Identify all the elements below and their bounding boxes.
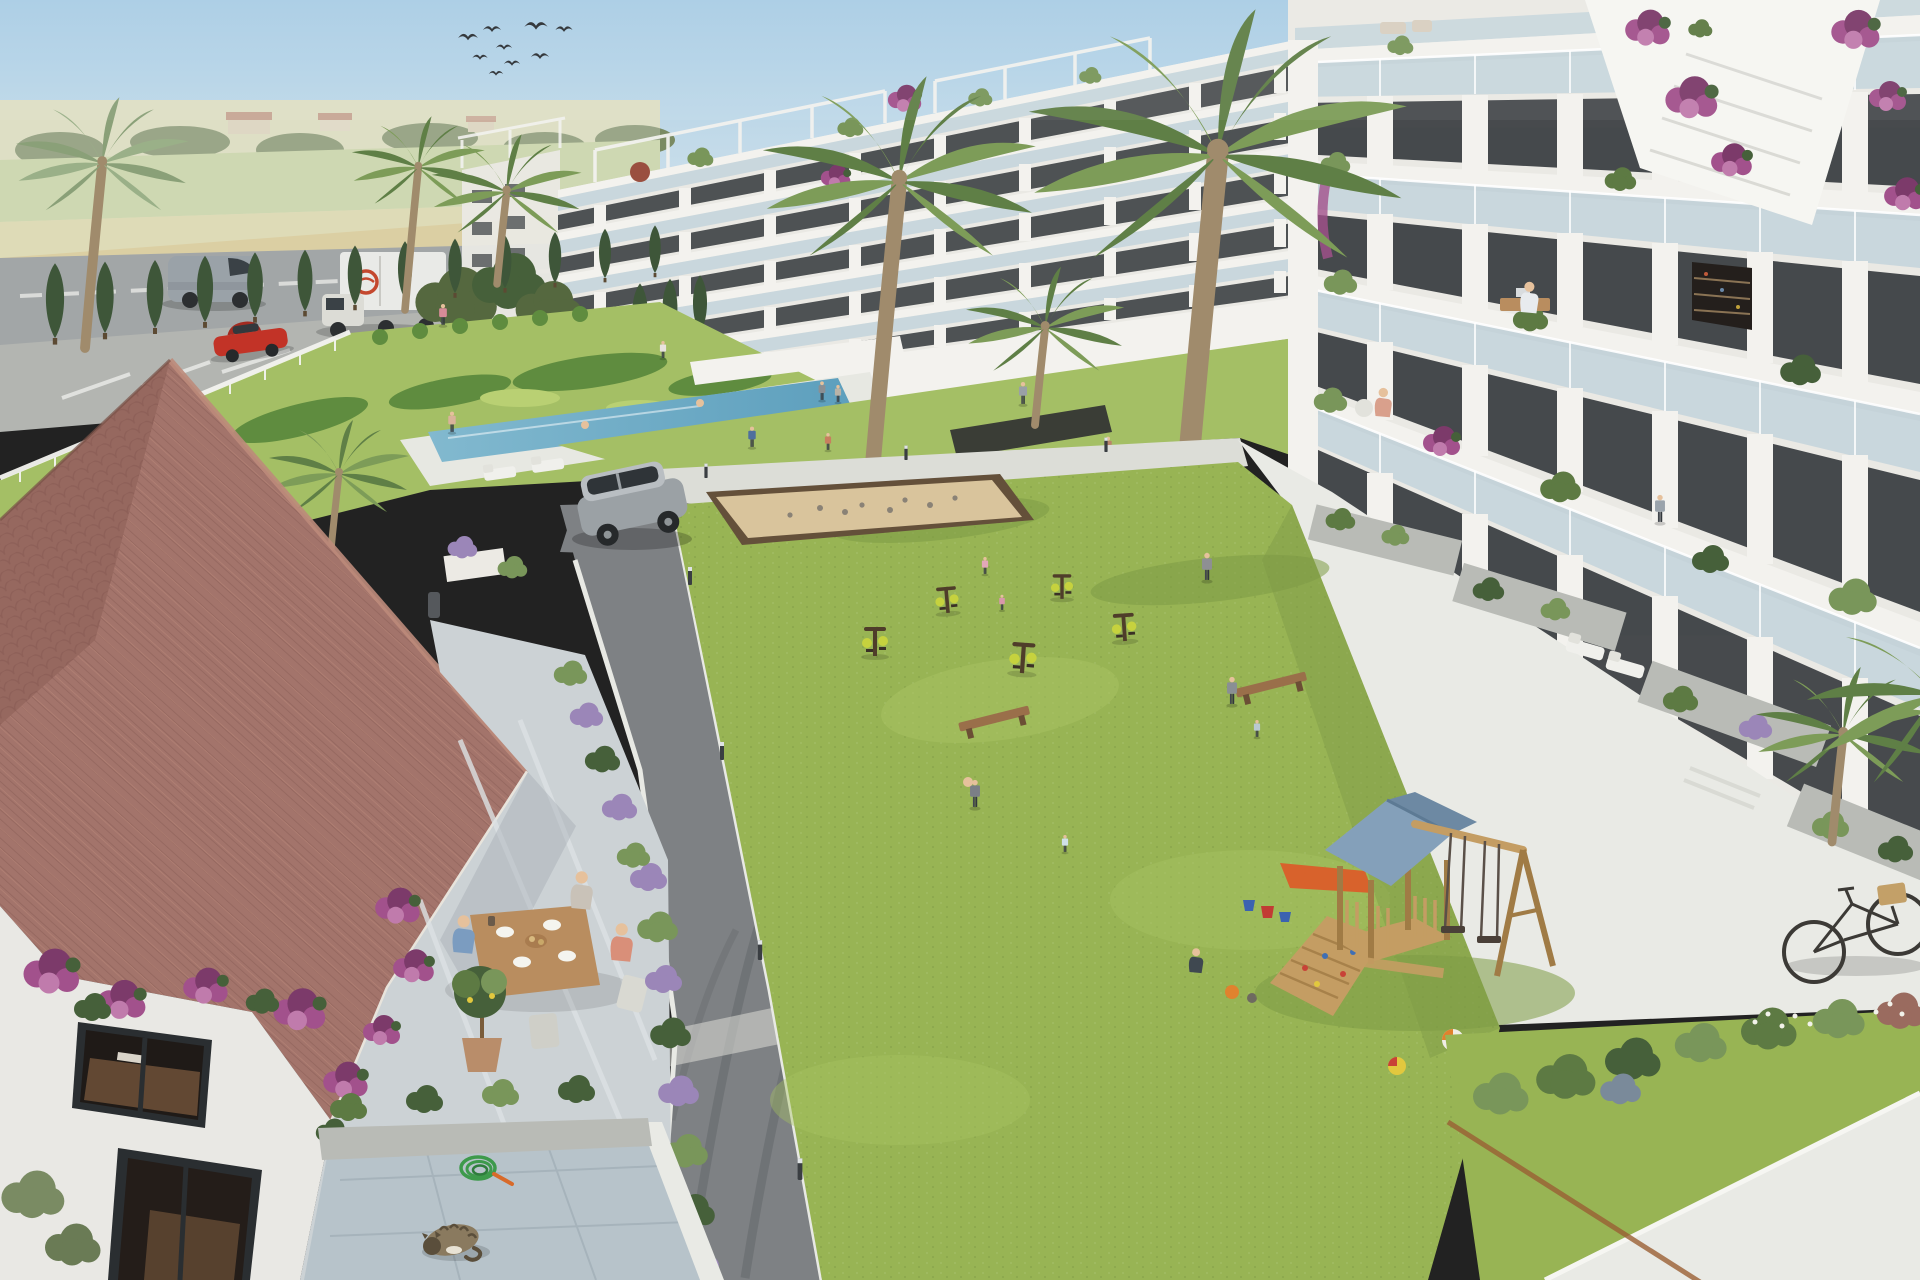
render-scene: Residential complex aerial render bbox=[0, 0, 1920, 1280]
swimmer bbox=[696, 399, 704, 407]
chair bbox=[528, 1013, 559, 1050]
coffee-pot bbox=[488, 916, 495, 926]
architectural-render: Residential complex aerial render bbox=[0, 0, 1920, 1280]
bottom-right-garden bbox=[1445, 993, 1920, 1280]
swimmer bbox=[581, 421, 589, 429]
sun-haze bbox=[0, 0, 1920, 120]
bookshelf bbox=[1692, 262, 1752, 330]
ball bbox=[1225, 985, 1239, 999]
garden-statue bbox=[428, 592, 440, 618]
balcony-table bbox=[1355, 399, 1373, 417]
swing-seat bbox=[1477, 936, 1501, 943]
swing-seat bbox=[1441, 926, 1465, 933]
wicker-basket bbox=[1877, 882, 1908, 906]
house-door bbox=[108, 1148, 262, 1280]
